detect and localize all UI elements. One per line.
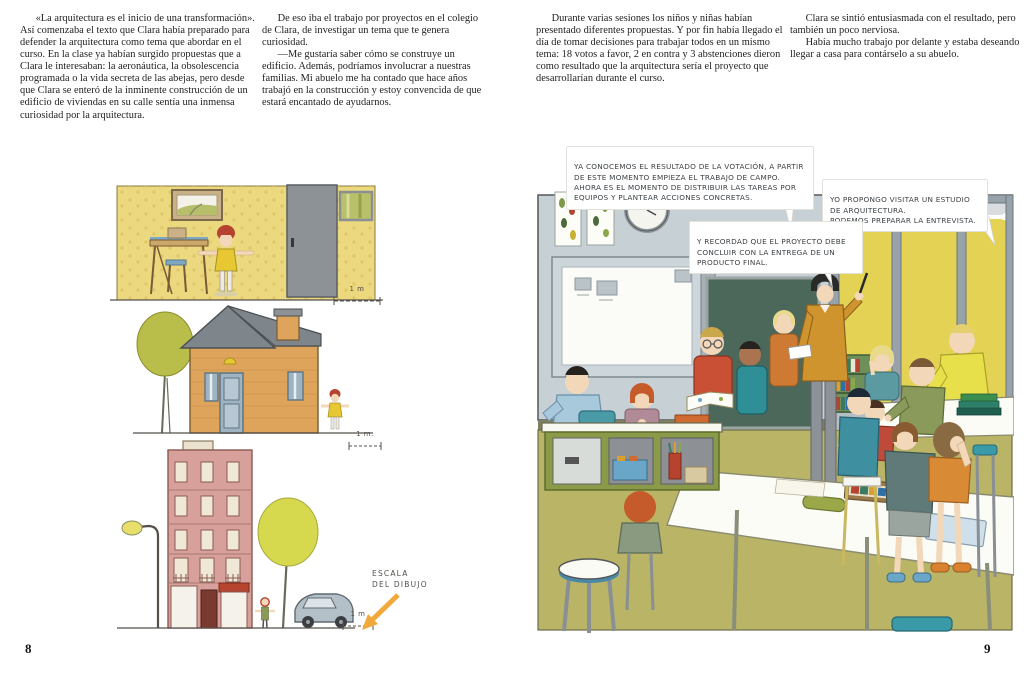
house-illustration	[125, 300, 385, 455]
left-column-2: De eso iba el trabajo por proyectos en e…	[262, 13, 488, 110]
paragraph: «La arquitectura es el inicio de una tra…	[20, 13, 256, 122]
dormer-roof	[274, 309, 302, 316]
blue-bin	[613, 460, 647, 480]
page-number-left: 8	[25, 641, 32, 657]
orange-shoe	[953, 563, 971, 572]
storage-counter	[542, 411, 722, 490]
paragraph: —Me gustaría saber cómo se construye un …	[262, 49, 488, 109]
teal-chair-fragment	[892, 617, 952, 631]
scale-line	[333, 296, 381, 306]
papers	[788, 345, 811, 360]
orange-shoe	[931, 563, 949, 572]
chair-seat	[843, 477, 881, 486]
left-column-1: «La arquitectura es el inicio de una tra…	[20, 13, 256, 122]
window	[340, 192, 372, 220]
scale-marker-house: 1 m.	[348, 430, 382, 456]
paragraph: Clara se sintió entusiasmada con el resu…	[790, 13, 1020, 37]
door-handle	[291, 238, 294, 247]
pencil-cup	[669, 453, 681, 479]
small-girl	[321, 389, 349, 429]
blue-shoe	[913, 573, 931, 582]
bag-on-desk	[168, 228, 186, 238]
tan-box	[685, 467, 707, 483]
shop-right	[221, 592, 247, 628]
scale-line	[348, 441, 382, 451]
speech-bubble-teacher-1: YA CONOCEMOS EL RESULTADO DE LA VOTACIÓN…	[566, 146, 814, 210]
speech-bubble-teacher-2: Y RECORDAD QUE EL PROYECTO DEBE CONCLUIR…	[689, 221, 863, 274]
orange-arrow-icon	[358, 592, 404, 632]
tree	[137, 312, 193, 433]
counter-top	[542, 423, 722, 432]
whiteboard	[552, 257, 702, 377]
teal-pencil-case	[579, 411, 615, 424]
door	[287, 185, 337, 297]
chair-seat	[166, 260, 186, 265]
book-spread: «La arquitectura es el inicio de una tra…	[0, 0, 1024, 683]
right-column-2: Clara se sintió entusiasmada con el resu…	[790, 13, 1020, 61]
entrance-door	[201, 590, 217, 628]
building	[168, 441, 252, 628]
streetlamp	[122, 521, 158, 628]
paragraph: De eso iba el trabajo por proyectos en e…	[262, 13, 488, 49]
cabinet-handle	[565, 457, 579, 464]
shop-left	[171, 586, 197, 628]
scale-marker-room: 1 m	[333, 285, 381, 311]
house	[181, 306, 321, 433]
paragraph: Durante varias sesiones los niños y niña…	[536, 13, 784, 85]
page-number-right: 9	[984, 641, 991, 657]
right-column-1: Durante varias sesiones los niños y niña…	[536, 13, 784, 85]
teal-chair	[973, 445, 997, 455]
scale-caption: ESCALA DEL DIBUJO	[372, 568, 428, 591]
tiny-person	[255, 598, 275, 628]
dormer	[277, 314, 299, 340]
blue-shoe	[887, 573, 905, 582]
paragraph: Había mucho trabajo por delante y estaba…	[790, 37, 1020, 61]
book-stack	[957, 394, 1001, 415]
apartment-building-illustration	[115, 440, 380, 635]
framed-picture	[172, 190, 222, 220]
shop-awning	[219, 583, 249, 592]
